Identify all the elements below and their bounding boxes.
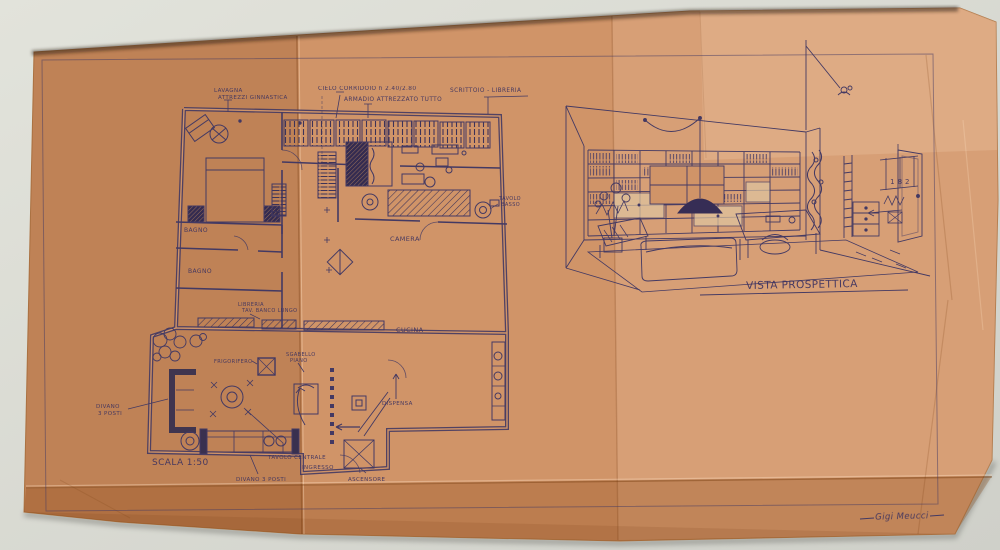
label-tavolo-basso-2: BASSO (501, 202, 520, 208)
label-scale: SCALA 1:50 (152, 458, 209, 468)
label-libreria-2: TAV. BANCO LUNGO (241, 308, 297, 314)
paper-highlight-topright (700, 8, 997, 160)
label-divano-2: 3 POSTI (98, 411, 122, 417)
label-sgabello-2: PIANO (290, 358, 308, 364)
label-divano-1: DIVANO (96, 404, 120, 410)
label-ingresso: INGRESSO (302, 465, 334, 471)
label-dispensa: DISPENSA (382, 401, 413, 407)
label-camera: CAMERA (390, 235, 420, 243)
label-ascensore: ASCENSORE (348, 477, 386, 483)
label-scrittoio: SCRITTOIO - LIBRERIA (450, 88, 521, 94)
label-cielo-corridoio: CIELO CORRIDOIO h 2.40/2.80 (318, 86, 416, 92)
label-tavolo-centrale: TAVOLO CENTRALE (267, 455, 326, 461)
label-armadio: ARMADIO ATTREZZATO TUTTO (344, 97, 442, 103)
signature: Gigi Meucci (875, 511, 929, 522)
blueprint-photo: LAVAGNA ATTREZZI GINNASTICA CIELO CORRID… (0, 0, 1000, 550)
label-divano-fondo: DIVANO 3 POSTI (236, 477, 286, 483)
perspective-caption: VISTA PROSPETTICA (746, 278, 858, 292)
photo-stage: LAVAGNA ATTREZZI GINNASTICA CIELO CORRID… (0, 0, 1000, 550)
label-bagno-2: BAGNO (188, 268, 212, 275)
label-lavagna-1: LAVAGNA (214, 88, 243, 94)
label-lavagna-2: ATTREZZI GINNASTICA (218, 95, 288, 101)
label-frigorifero: FRIGORIFERO (214, 359, 252, 365)
label-cucina: CUCINA (396, 326, 424, 334)
dimension-numbers: 1 8 2 (890, 178, 910, 186)
label-bagno-1: BAGNO (184, 227, 208, 234)
